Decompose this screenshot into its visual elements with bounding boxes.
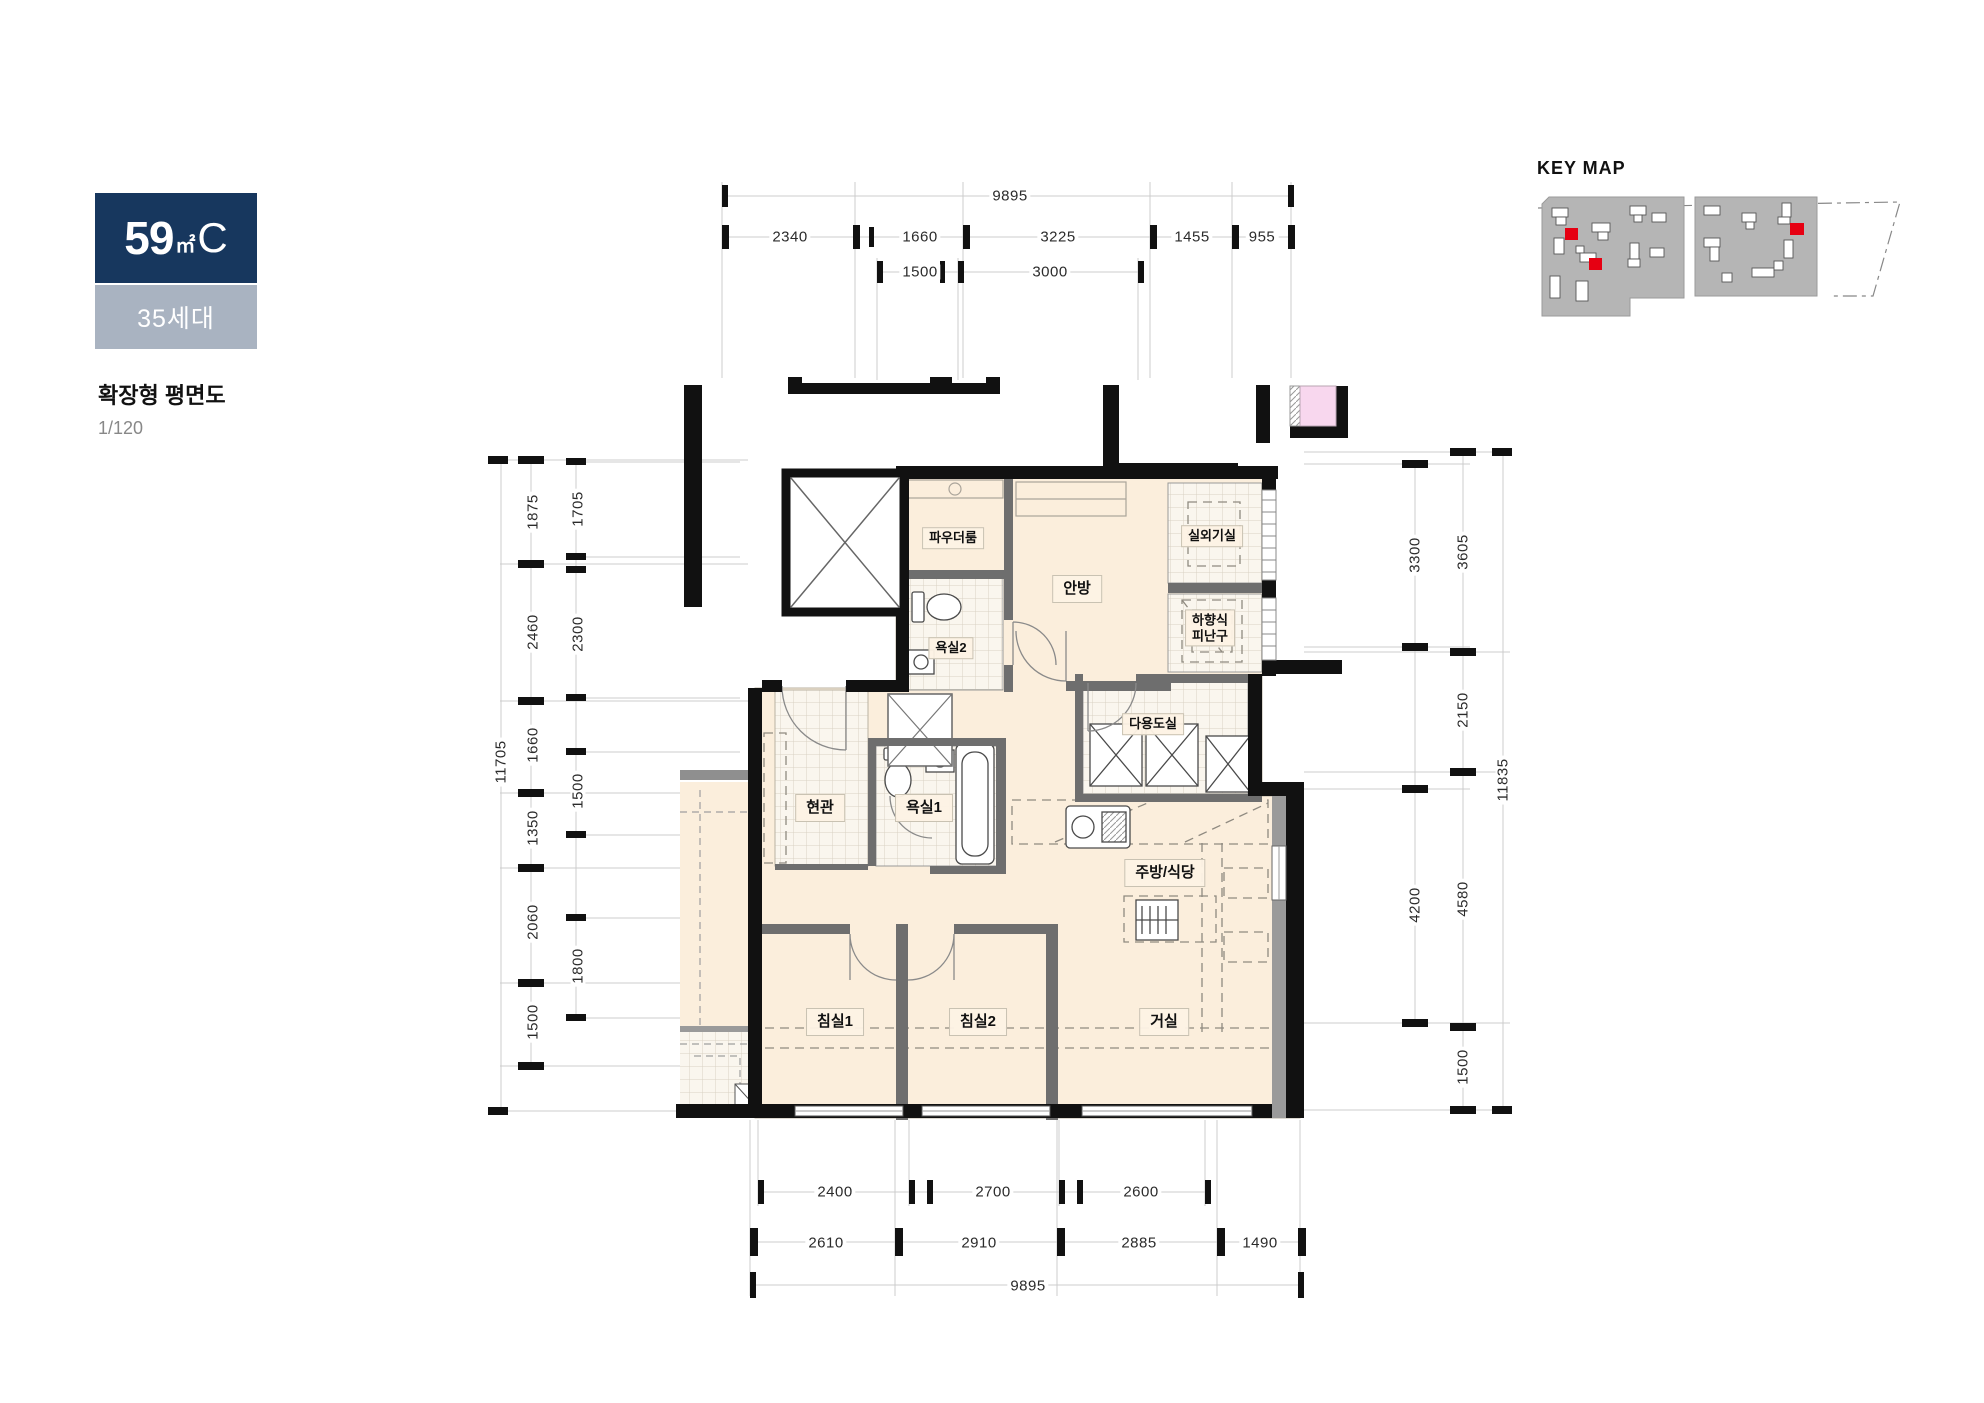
dim-top-1500: 1500 [899, 265, 940, 280]
room-label-bathroom1: 욕실1 [895, 794, 953, 822]
room-label-escape-hatch-line1: 하향식 [1192, 612, 1228, 628]
dim-top-1660: 1660 [899, 230, 940, 245]
dim-right-1500: 1500 [1456, 1046, 1471, 1087]
room-label-entrance: 현관 [795, 794, 845, 822]
dim-top-3000: 3000 [1029, 265, 1070, 280]
dim-top-total: 9895 [989, 189, 1030, 204]
room-label-escape-hatch: 하향식 피난구 [1185, 609, 1235, 646]
dim-bottom-2600: 2600 [1120, 1185, 1161, 1200]
dim-right-2150: 2150 [1456, 689, 1471, 730]
dim-right-total: 11835 [1496, 755, 1511, 804]
key-map [1532, 118, 1932, 328]
dim-left-inner-1705: 1705 [571, 488, 586, 529]
dim-left-total: 11705 [494, 737, 509, 786]
plan-scale: 1/120 [98, 418, 143, 439]
dim-bottom-2700: 2700 [972, 1185, 1013, 1200]
dim-left-1350: 1350 [526, 807, 541, 848]
dim-left-inner-1500: 1500 [571, 770, 586, 811]
dim-bottom-2885: 2885 [1118, 1236, 1159, 1251]
room-label-bathroom2: 욕실2 [928, 637, 973, 659]
dim-left-2060: 2060 [526, 901, 541, 942]
dim-left-inner-2300: 2300 [571, 613, 586, 654]
dim-top-955: 955 [1246, 230, 1279, 245]
room-label-ac-unit-room: 실외기실 [1181, 525, 1243, 547]
floor-plan-drawing [370, 130, 1530, 1310]
dim-right-4200: 4200 [1408, 884, 1423, 925]
room-label-living-room: 거실 [1139, 1008, 1189, 1036]
room-label-master-bedroom: 안방 [1052, 575, 1102, 603]
dim-bottom-2610: 2610 [805, 1236, 846, 1251]
dim-left-1875: 1875 [526, 491, 541, 532]
floor-plan-page: { "badge": { "area_value": "59", "area_u… [0, 0, 1984, 1403]
room-label-bedroom2: 침실2 [949, 1008, 1007, 1036]
dim-left-1660: 1660 [526, 724, 541, 765]
dim-top-3225: 3225 [1037, 230, 1078, 245]
unit-area-value: 59 [124, 211, 173, 265]
unit-area-unit: ㎡ [175, 229, 195, 258]
dim-bottom-2910: 2910 [958, 1236, 999, 1251]
dim-right-4580: 4580 [1456, 878, 1471, 919]
households-badge: 35세대 [95, 285, 257, 349]
unit-type-badge: 59㎡C [95, 193, 257, 283]
dim-bottom-2400: 2400 [814, 1185, 855, 1200]
dim-left-2460: 2460 [526, 611, 541, 652]
dim-bottom-total: 9895 [1007, 1279, 1048, 1294]
dim-left-inner-1800: 1800 [571, 945, 586, 986]
room-label-escape-hatch-line2: 피난구 [1192, 628, 1228, 644]
dim-top-2340: 2340 [769, 230, 810, 245]
room-label-bedroom1: 침실1 [806, 1008, 864, 1036]
dim-right-3605: 3605 [1456, 531, 1471, 572]
dim-bottom-1490: 1490 [1239, 1236, 1280, 1251]
room-label-utility-room: 다용도실 [1122, 713, 1184, 735]
unit-area-type: C [197, 214, 227, 262]
plan-type-title: 확장형 평면도 [98, 378, 226, 410]
room-label-kitchen-dining: 주방/식당 [1124, 859, 1205, 887]
dim-top-1455: 1455 [1171, 230, 1212, 245]
dim-right-3300: 3300 [1408, 534, 1423, 575]
room-label-powder-room: 파우더룸 [922, 527, 984, 549]
dim-left-1500: 1500 [526, 1001, 541, 1042]
